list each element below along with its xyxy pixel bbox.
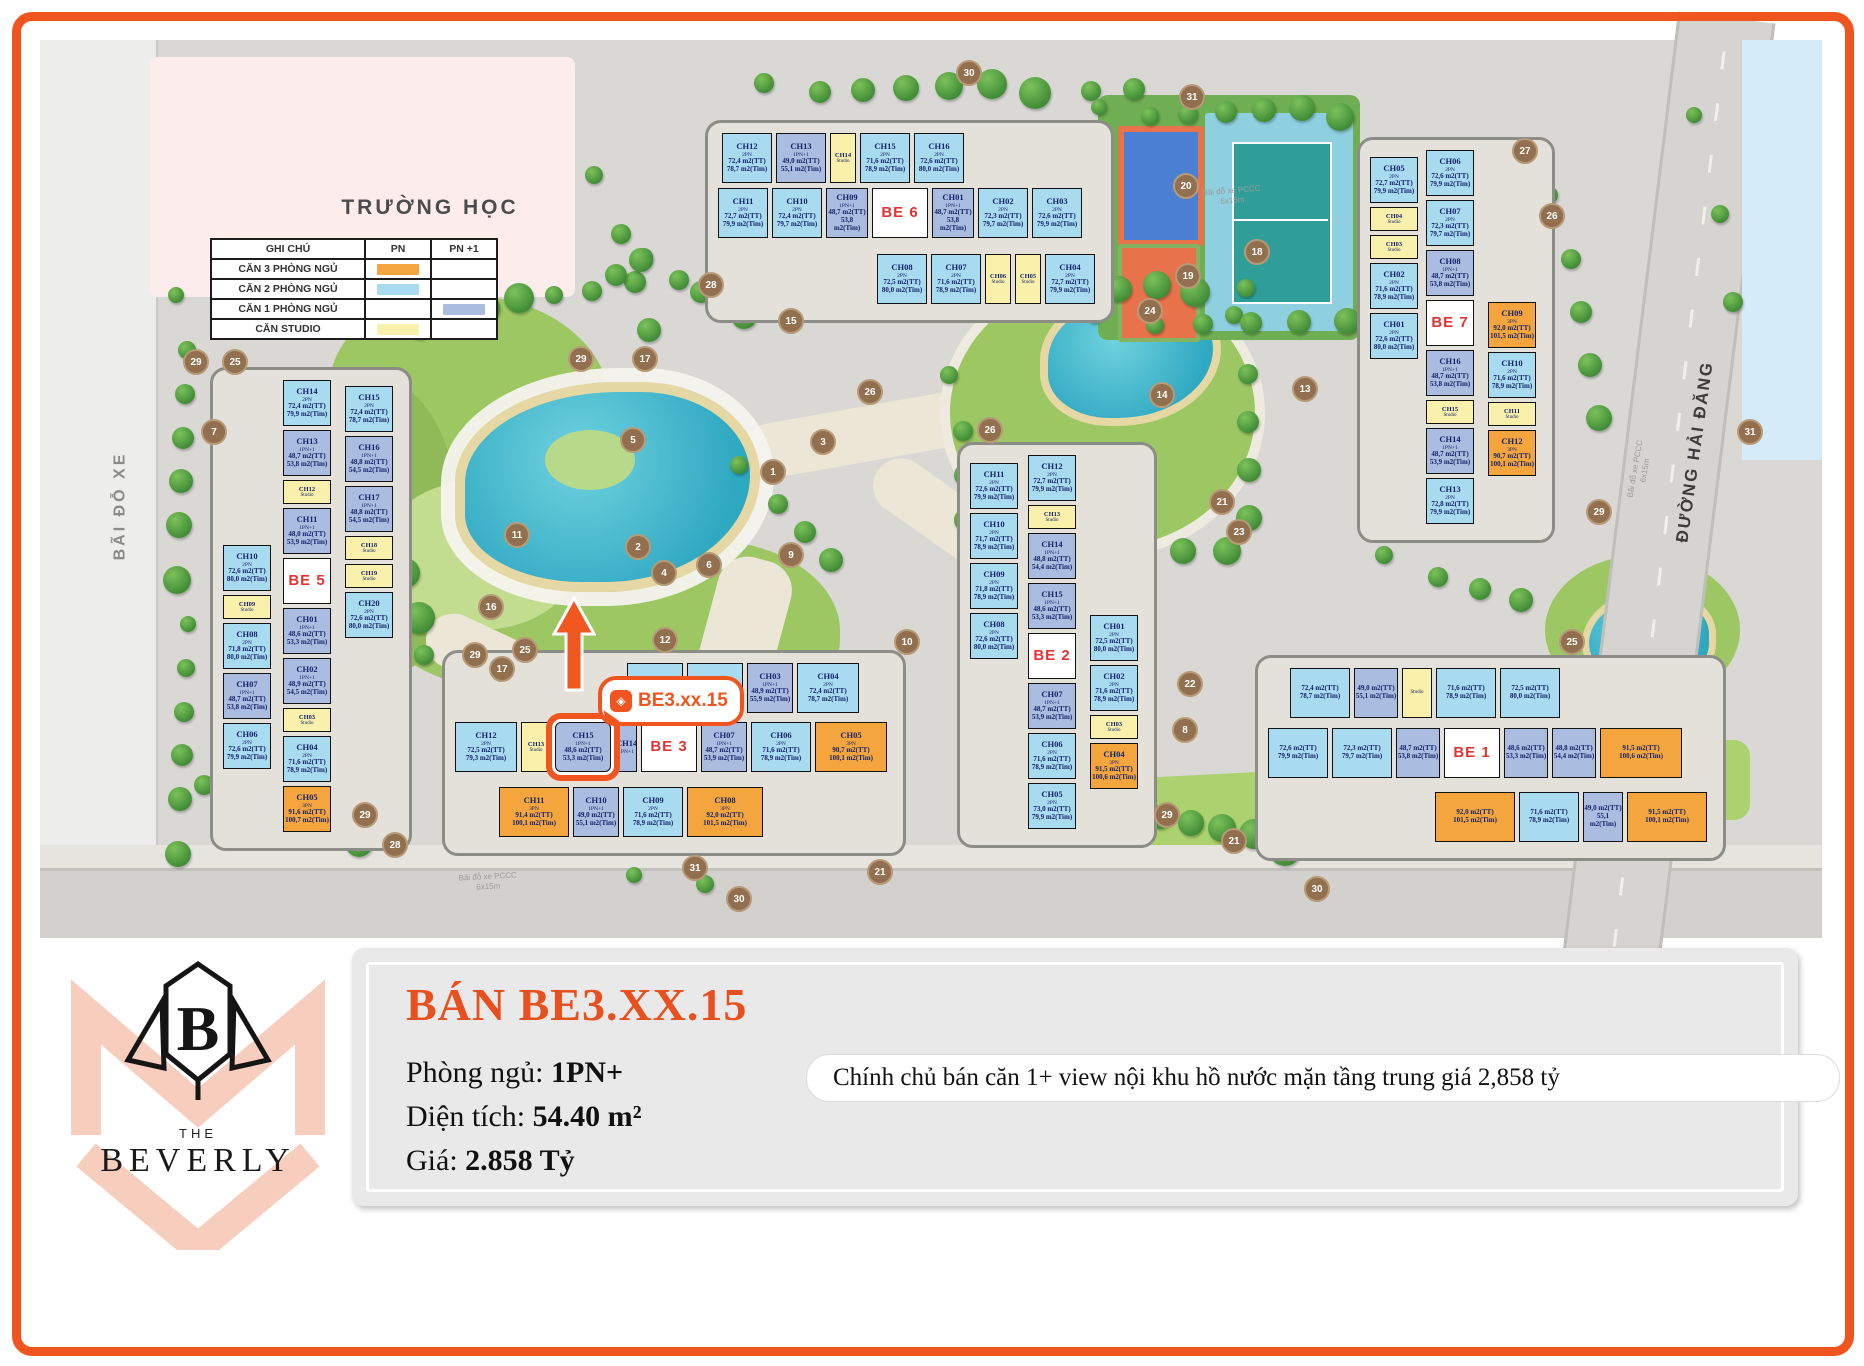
map-marker: 29 [568, 346, 594, 372]
unit-cell[interactable]: CH122PN72,4 m2(TT)78,7 m2(Tim) [722, 133, 772, 183]
unit-cell[interactable]: CH18Studio [345, 536, 393, 560]
unit-cell[interactable]: CH032PN72,6 m2(TT)79,9 m2(Tim) [1032, 188, 1082, 238]
tree [1178, 810, 1204, 836]
unit-cell[interactable]: Studio [1402, 668, 1432, 718]
tree [754, 73, 774, 93]
unit-cell[interactable]: 72,5 m2(TT)80,0 m2(Tim) [1500, 668, 1560, 718]
unit-cell[interactable]: CH012PN72,6 m2(TT)80,0 m2(Tim) [1370, 313, 1418, 359]
unit-cell[interactable]: CH042PN72,7 m2(TT)79,9 m2(Tim) [1045, 254, 1095, 304]
unit-cell[interactable]: CH102PN71,7 m2(TT)78,9 m2(Tim) [970, 513, 1018, 559]
map-marker: 21 [867, 859, 893, 885]
tree [1141, 107, 1159, 125]
unit-cell[interactable]: CH072PN72,3 m2(TT)79,7 m2(Tim) [1426, 200, 1474, 246]
unit-cell[interactable]: CH151PN+148,6 m2(TT)53,3 m2(Tim) [1028, 583, 1076, 629]
map-marker: 31 [1179, 84, 1205, 110]
unit-cell[interactable]: CH14Studio [830, 133, 856, 183]
logo-name: BEVERLY [58, 1142, 338, 1180]
map-marker: 15 [778, 308, 804, 334]
unit-cell[interactable]: CH152PN71,6 m2(TT)78,9 m2(Tim) [860, 133, 910, 183]
tree [163, 566, 191, 594]
building-label: BE 7 [1426, 300, 1474, 346]
logo-the: THE [58, 1126, 338, 1141]
unit-cell[interactable]: CH043PN91,5 m2(TT)100,6 m2(Tim) [1090, 743, 1138, 789]
tree [582, 281, 602, 301]
parking-strip [40, 40, 158, 870]
tree [1170, 538, 1196, 564]
unit-cell[interactable]: CH141PN+148,7 m2(TT)53,9 m2(Tim) [1426, 428, 1474, 474]
map-marker: 12 [652, 627, 678, 653]
unit-cell[interactable]: CH19Studio [345, 564, 393, 588]
map-marker: 25 [222, 349, 248, 375]
unit-cell[interactable]: CH093PN92,0 m2(TT)101,5 m2(Tim) [1488, 302, 1536, 348]
tree [165, 841, 191, 867]
unit-cell[interactable]: CH162PN72,6 m2(TT)80,0 m2(Tim) [914, 133, 964, 183]
tree [730, 456, 748, 474]
map-marker: 14 [1149, 382, 1175, 408]
unit-cell[interactable]: CH161PN+148,8 m2(TT)54,5 m2(Tim) [345, 436, 393, 482]
unit-cell[interactable]: 71,6 m2(TT)78,9 m2(Tim) [1519, 792, 1579, 842]
unit-cell[interactable]: CH13Studio [521, 722, 551, 772]
unit-cell[interactable]: CH132PN72,8 m2(TT)79,9 m2(Tim) [1426, 478, 1474, 524]
listing-title: BÁN BE3.XX.15 [406, 978, 747, 1031]
unit-cell[interactable]: CH131PN+148,7 m2(TT)53,8 m2(Tim) [283, 430, 331, 476]
map-marker: 30 [956, 60, 982, 86]
map-marker: 17 [632, 346, 658, 372]
tree [629, 248, 653, 272]
map-marker: 2 [625, 534, 651, 560]
unit-cell[interactable]: CH042PN71,6 m2(TT)78,9 m2(Tim) [283, 736, 331, 782]
map-marker: 25 [1559, 629, 1585, 655]
unit-cell[interactable]: CH081PN+148,7 m2(TT)53,8 m2(Tim) [1426, 250, 1474, 296]
tree [180, 616, 196, 632]
map-marker: 26 [1539, 203, 1565, 229]
tree [168, 287, 184, 303]
unit-cell[interactable]: 49,0 m2(TT)55,1 m2(Tim) [1583, 792, 1623, 842]
unit-cell[interactable]: CH062PN72,6 m2(TT)79,9 m2(Tim) [223, 723, 271, 769]
tree [172, 427, 194, 449]
unit-cell[interactable]: CH15Studio [1426, 400, 1474, 424]
tree [1578, 353, 1602, 377]
unit-cell[interactable]: CH031PN+148,9 m2(TT)55,9 m2(Tim) [747, 663, 793, 713]
tree [174, 702, 194, 722]
tree [940, 366, 958, 384]
map-marker: 31 [1737, 419, 1763, 445]
map-marker: 23 [1226, 519, 1252, 545]
selected-unit-label: BE3.xx.15 [638, 690, 728, 712]
building-label: BE 5 [283, 558, 331, 604]
unit-cell[interactable]: CH09Studio [223, 595, 271, 619]
tree [626, 867, 642, 883]
map-marker: 30 [726, 886, 752, 912]
map-marker: 17 [489, 656, 515, 682]
tree [1237, 279, 1255, 297]
tree [1570, 301, 1592, 323]
map-marker: 21 [1221, 828, 1247, 854]
listing-description: Chính chủ bán căn 1+ view nội khu hồ nướ… [806, 1054, 1840, 1102]
map-marker: 20 [1173, 173, 1199, 199]
building-label: BE 1 [1444, 728, 1500, 778]
unit-cell[interactable]: CH112PN72,7 m2(TT)79,9 m2(Tim) [718, 188, 768, 238]
building-label: BE 6 [872, 188, 928, 238]
tree [175, 384, 195, 404]
pccc-parking-label: Bãi đỗ xe PCCC 6x15m [452, 870, 525, 893]
unit-cell[interactable]: 92,0 m2(TT)101,5 m2(Tim) [1435, 792, 1515, 842]
unit-cell[interactable]: CH04Studio [1370, 207, 1418, 231]
unit-cell[interactable]: CH062PN71,6 m2(TT)78,9 m2(Tim) [1028, 733, 1076, 779]
unit-cell[interactable]: CH142PN72,4 m2(TT)79,9 m2(Tim) [283, 380, 331, 426]
unit-cell[interactable]: CH082PN71,8 m2(TT)80,0 m2(Tim) [223, 623, 271, 669]
map-marker: 25 [512, 637, 538, 663]
tree [1469, 578, 1491, 600]
tree [1686, 107, 1702, 123]
tree [1711, 205, 1729, 223]
unit-cell[interactable]: 48,8 m2(TT)54,4 m2(Tim) [1552, 728, 1596, 778]
school-label: TRƯỜNG HỌC [300, 196, 560, 220]
map-marker: 1 [760, 459, 786, 485]
map-marker: 9 [778, 542, 804, 568]
unit-cell[interactable]: CH052PN72,7 m2(TT)79,9 m2(Tim) [1370, 157, 1418, 203]
tree [809, 81, 831, 103]
unit-cell[interactable]: CH06Studio [985, 254, 1011, 304]
tree [611, 224, 631, 244]
tree [1193, 314, 1213, 334]
tree [414, 645, 434, 665]
unit-cell[interactable]: CH022PN72,3 m2(TT)79,7 m2(Tim) [978, 188, 1028, 238]
unit-cell[interactable]: CH05Studio [1015, 254, 1041, 304]
unit-cell[interactable]: CH071PN+148,7 m2(TT)53,9 m2(Tim) [701, 722, 747, 772]
map-marker: 26 [857, 379, 883, 405]
map-marker: 8 [1172, 717, 1198, 743]
map-marker: 29 [183, 349, 209, 375]
map-marker: 7 [201, 419, 227, 445]
unit-cell[interactable]: 72,3 m2(TT)79,7 m2(Tim) [1332, 728, 1392, 778]
brand-logo: B THE BEVERLY [58, 950, 338, 1250]
tree [1289, 95, 1315, 121]
map-marker: 30 [1304, 876, 1330, 902]
tree [177, 659, 195, 677]
building-label: BE 2 [1028, 633, 1076, 679]
map-marker: 10 [894, 629, 920, 655]
unit-cell[interactable]: 72,6 m2(TT)79,9 m2(Tim) [1268, 728, 1328, 778]
unit-cell[interactable]: CH072PN71,6 m2(TT)78,9 m2(Tim) [931, 254, 981, 304]
map-marker: 29 [462, 642, 488, 668]
unit-cell[interactable]: CH011PN+148,7 m2(TT)53,8 m2(Tim) [932, 188, 974, 238]
tennis-net-line [1232, 219, 1328, 221]
selection-arrow-icon [552, 596, 596, 692]
unit-cell[interactable]: CH113PN91,4 m2(TT)100,1 m2(Tim) [499, 787, 569, 837]
tree [1123, 78, 1145, 100]
tree [504, 283, 534, 313]
unit-cell[interactable]: CH082PN72,5 m2(TT)80,0 m2(Tim) [877, 254, 927, 304]
unit-cell[interactable]: CH123PN90,7 m2(TT)100,1 m2(Tim) [1488, 430, 1536, 476]
unit-cell[interactable]: 49,0 m2(TT)55,1 m2(Tim) [1354, 668, 1398, 718]
unit-cell[interactable]: CH062PN72,6 m2(TT)79,9 m2(Tim) [1426, 150, 1474, 196]
price-row: Giá: 2.858 Tỷ [406, 1144, 575, 1178]
unit-cell[interactable]: CH012PN72,5 m2(TT)80,0 m2(Tim) [1090, 615, 1138, 661]
map-marker: 28 [698, 272, 724, 298]
unit-cell[interactable]: CH03Studio [1090, 715, 1138, 739]
unit-pin-icon: ◈ [610, 690, 632, 712]
map-marker: 5 [620, 427, 646, 453]
unit-cell[interactable]: 71,6 m2(TT)78,9 m2(Tim) [1436, 668, 1496, 718]
unit-cell[interactable]: CH022PN71,6 m2(TT)78,9 m2(Tim) [1090, 665, 1138, 711]
unit-cell[interactable]: CH11Studio [1488, 402, 1536, 426]
tree [1326, 103, 1354, 131]
tree [851, 78, 875, 102]
map-marker: 4 [651, 560, 677, 586]
map-marker: 29 [1154, 802, 1180, 828]
bottom-road [40, 868, 1822, 938]
unit-cell[interactable]: CH122PN72,5 m2(TT)79,3 m2(Tim) [455, 722, 517, 772]
unit-cell[interactable]: CH171PN+148,8 m2(TT)54,5 m2(Tim) [345, 486, 393, 532]
map-marker: 6 [696, 552, 722, 578]
tree [637, 318, 661, 342]
unit-cell[interactable]: CH111PN+148,0 m2(TT)53,9 m2(Tim) [283, 508, 331, 554]
unit-cell[interactable]: CH071PN+148,7 m2(TT)53,8 m2(Tim) [223, 673, 271, 719]
map-marker: 3 [810, 429, 836, 455]
tree [1287, 310, 1311, 334]
tree [585, 166, 603, 184]
map-marker: 29 [352, 802, 378, 828]
map-marker: 31 [682, 855, 708, 881]
tree [953, 421, 973, 441]
unit-cell[interactable]: CH062PN71,6 m2(TT)78,9 m2(Tim) [751, 722, 811, 772]
tree [1019, 77, 1051, 109]
tree [166, 512, 192, 538]
map-marker: 22 [1177, 671, 1203, 697]
map-marker: 11 [504, 522, 530, 548]
unit-cell[interactable]: CH13Studio [1028, 505, 1076, 529]
map-marker: 26 [977, 417, 1003, 443]
legend: GHI CHÚPNPN +1CĂN 3 PHÒNG NGỦCĂN 2 PHÒNG… [210, 238, 498, 340]
tree [545, 286, 563, 304]
unit-cell[interactable]: CH03Studio [1370, 235, 1418, 259]
unit-cell[interactable]: CH042PN72,4 m2(TT)78,7 m2(Tim) [797, 663, 859, 713]
unit-cell[interactable]: CH052PN73,0 m2(TT)79,9 m2(Tim) [1028, 783, 1076, 829]
unit-cell[interactable]: CH141PN+1 [615, 722, 637, 772]
unit-cell[interactable]: CH122PN72,7 m2(TT)79,9 m2(Tim) [1028, 455, 1076, 501]
unit-cell[interactable]: CH011PN+148,6 m2(TT)53,3 m2(Tim) [283, 608, 331, 654]
parking-label: BÃI ĐỖ XE [112, 419, 134, 594]
tree [1375, 546, 1393, 564]
tree [1081, 81, 1101, 101]
unit-cell[interactable]: 48,7 m2(TT)53,8 m2(Tim) [1396, 728, 1440, 778]
map-marker: 13 [1292, 376, 1318, 402]
unit-cell[interactable]: CH101PN+149,0 m2(TT)55,1 m2(Tim) [573, 787, 619, 837]
unit-cell[interactable]: CH152PN72,4 m2(TT)78,7 m2(Tim) [345, 386, 393, 432]
unit-cell[interactable]: CH161PN+148,7 m2(TT)53,8 m2(Tim) [1426, 350, 1474, 396]
map-marker: 24 [1137, 298, 1163, 324]
unit-cell[interactable]: CH071PN+148,7 m2(TT)53,9 m2(Tim) [1028, 683, 1076, 729]
map-marker: 28 [382, 832, 408, 858]
tree [1723, 292, 1743, 312]
map-marker: 19 [1175, 263, 1201, 289]
tree [1091, 99, 1107, 115]
tree [1252, 98, 1276, 122]
tree [1237, 458, 1261, 482]
map-marker: 18 [1244, 239, 1270, 265]
unit-cell[interactable]: CH141PN+148,8 m2(TT)54,4 m2(Tim) [1028, 533, 1076, 579]
unit-cell[interactable]: CH102PN72,4 m2(TT)79,7 m2(Tim) [772, 188, 822, 238]
tree [1586, 405, 1612, 431]
unit-cell[interactable]: CH083PN92,0 m2(TT)101,5 m2(Tim) [687, 787, 763, 837]
tree [1238, 364, 1258, 384]
unit-cell[interactable]: CH091PN+148,7 m2(TT)53,8 m2(Tim) [826, 188, 868, 238]
water-strip [1742, 40, 1822, 460]
unit-cell[interactable]: 48,6 m2(TT)53,3 m2(Tim) [1504, 728, 1548, 778]
unit-cell[interactable]: CH03Studio [283, 708, 331, 732]
tree [168, 787, 192, 811]
unit-cell[interactable]: CH082PN72,6 m2(TT)80,0 m2(Tim) [970, 613, 1018, 659]
tree [893, 75, 919, 101]
map-marker: 21 [1209, 489, 1235, 515]
map-marker: 29 [1586, 499, 1612, 525]
unit-cell[interactable]: CH022PN71,6 m2(TT)78,9 m2(Tim) [1370, 263, 1418, 309]
tree [1237, 411, 1259, 433]
unit-cell[interactable]: CH053PN91,6 m2(TT)100,7 m2(Tim) [283, 786, 331, 832]
svg-text:B: B [177, 993, 220, 1064]
tree [1215, 101, 1237, 123]
tree [1240, 312, 1262, 334]
unit-cell[interactable]: CH112PN72,6 m2(TT)79,9 m2(Tim) [970, 463, 1018, 509]
listing-info-panel: BÁN BE3.XX.15 Phòng ngủ: 1PN+ Diện tích:… [352, 948, 1798, 1206]
unit-cell[interactable]: 91,5 m2(TT)100,6 m2(Tim) [1600, 728, 1682, 778]
unit-cell[interactable]: CH202PN72,6 m2(TT)80,0 m2(Tim) [345, 592, 393, 638]
tree [794, 521, 816, 543]
unit-cell[interactable]: CH092PN71,8 m2(TT)78,9 m2(Tim) [970, 563, 1018, 609]
selected-unit-callout[interactable]: ◈ BE3.xx.15 [598, 676, 744, 726]
area-row: Diện tích: 54.40 m² [406, 1100, 642, 1134]
map-marker: 27 [1512, 138, 1538, 164]
tree [624, 271, 646, 293]
unit-cell[interactable]: 91,5 m2(TT)100,1 m2(Tim) [1627, 792, 1707, 842]
unit-cell[interactable]: CH131PN+149,0 m2(TT)55,1 m2(Tim) [776, 133, 826, 183]
unit-cell[interactable]: CH12Studio [283, 480, 331, 504]
unit-cell[interactable]: CH053PN90,7 m2(TT)100,1 m2(Tim) [815, 722, 887, 772]
unit-cell[interactable]: CH102PN71,6 m2(TT)78,9 m2(Tim) [1488, 352, 1536, 398]
unit-cell[interactable]: CH092PN71,6 m2(TT)78,9 m2(Tim) [623, 787, 683, 837]
tree [1509, 588, 1533, 612]
bedrooms-row: Phòng ngủ: 1PN+ [406, 1056, 623, 1090]
unit-cell[interactable]: CH021PN+148,9 m2(TT)54,5 m2(Tim) [283, 658, 331, 704]
tree [819, 548, 843, 572]
tree [669, 270, 689, 290]
map-marker: 16 [478, 594, 504, 620]
building-label: BE 3 [641, 722, 697, 772]
unit-cell[interactable]: CH102PN72,6 m2(TT)80,0 m2(Tim) [223, 545, 271, 591]
unit-cell[interactable]: 72,4 m2(TT)78,7 m2(Tim) [1290, 668, 1350, 718]
